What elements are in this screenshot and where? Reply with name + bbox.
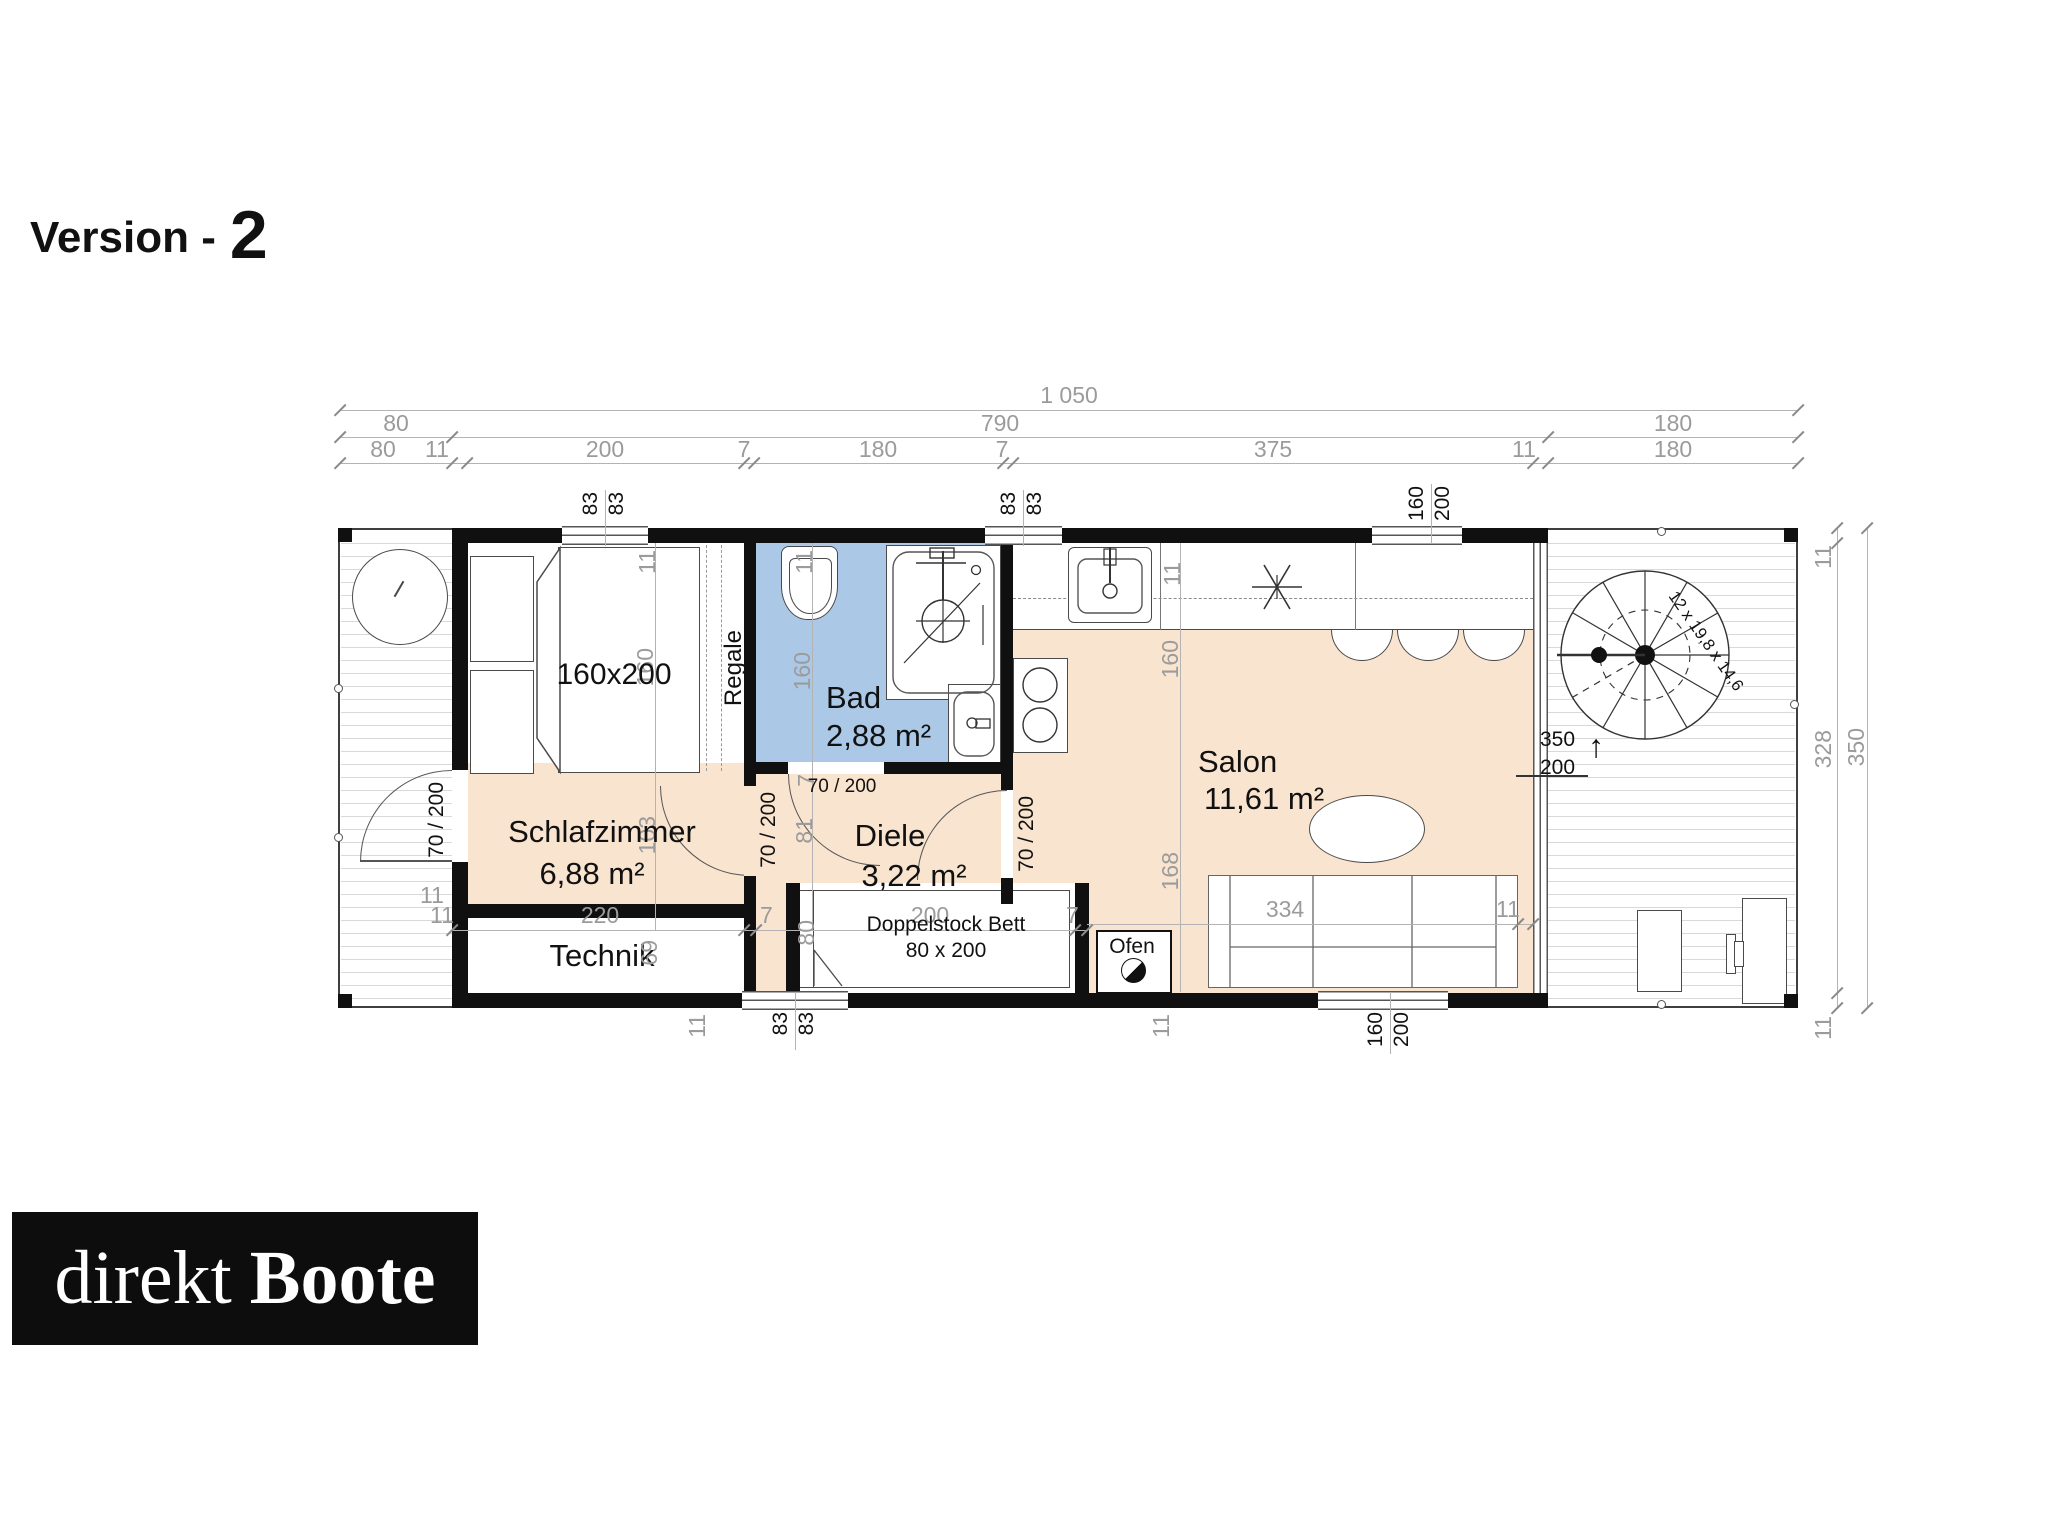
- regale-shelf-line: [706, 545, 707, 771]
- door-label-diele-salon: 70 / 200: [1016, 796, 1037, 872]
- deck-corner: [1784, 528, 1798, 542]
- bett-fold: [812, 948, 846, 990]
- dim-technik-69: 69: [638, 940, 661, 966]
- dim-line-row2: [340, 437, 1798, 438]
- dim-win-bett-83b: 83: [796, 1012, 817, 1035]
- dim-win-bed-83b: 83: [606, 492, 627, 515]
- deck-corner: [338, 528, 352, 542]
- rear-deck-chair-arm: [1734, 941, 1744, 967]
- spiral-staircase: 12 x 19,8 x 14,6: [1552, 562, 1742, 752]
- dim-line-right-inner: [1837, 528, 1838, 1008]
- dim-win-salon2-160: 160: [1365, 1012, 1386, 1047]
- door-label-deck: 70 / 200: [426, 782, 447, 858]
- window-salon-bottom: [1318, 991, 1448, 1010]
- title-number: 2: [230, 197, 268, 273]
- dim-row3-375: 375: [1254, 438, 1292, 461]
- deck-corner: [338, 994, 352, 1008]
- dim-bottom-7b: 7: [1066, 904, 1079, 927]
- ofen-label: Ofen: [1109, 936, 1155, 957]
- dim-row3-7a: 7: [738, 438, 751, 461]
- room-schlafzimmer-name: Schlafzimmer: [508, 814, 696, 850]
- slider-height: 200: [1540, 757, 1575, 778]
- bed-size-label: 160x200: [556, 658, 671, 693]
- dim-right-328: 328: [1812, 730, 1835, 768]
- room-diele-area: 3,22 m²: [861, 858, 966, 894]
- dim-bottom-11: 11: [430, 904, 454, 927]
- window-salon-top: [1372, 526, 1462, 545]
- wall-bett-east: [1075, 883, 1089, 993]
- wardrobe-upper: [470, 556, 534, 662]
- wall-salon-west-lower: [1001, 878, 1013, 904]
- dim-salon-11: 11: [1161, 562, 1184, 586]
- room-bad-name: Bad: [826, 680, 881, 716]
- brand-logo: direkt Boote: [12, 1212, 478, 1345]
- kitchen-sink-symbol: [1068, 547, 1152, 623]
- stove-burners: [1013, 658, 1068, 753]
- page-title: Version -2: [30, 196, 268, 274]
- dim-below-11a: 11: [686, 1014, 709, 1038]
- dim-row3-11b: 11: [1512, 438, 1536, 461]
- dim-win-bad-83a: 83: [998, 492, 1019, 515]
- dim-win-bed-83a: 83: [580, 492, 601, 515]
- wall-left: [452, 528, 468, 1008]
- title-text: Version -: [30, 213, 216, 262]
- dim-row2-180: 180: [1654, 412, 1692, 435]
- dim-total: 1 050: [1040, 384, 1098, 407]
- rail-node: [334, 833, 343, 842]
- dim-right-350: 350: [1845, 728, 1868, 766]
- deck-corner: [1784, 994, 1798, 1008]
- dim-sofa-11: 11: [1496, 898, 1520, 921]
- dim-line-right-outer: [1867, 528, 1868, 1008]
- dim-row3-180a: 180: [859, 438, 897, 461]
- shower-symbol: [886, 545, 1001, 700]
- room-bad-area: 2,88 m²: [826, 718, 931, 754]
- dim-row3-80: 80: [370, 438, 396, 461]
- wardrobe-lower: [470, 670, 534, 774]
- dimline-sofa: [1087, 924, 1533, 925]
- dim-line-total: [340, 410, 1798, 411]
- dim-sofa-334: 334: [1266, 898, 1304, 921]
- slider-width: 350: [1540, 729, 1575, 750]
- slider-arrow-icon: ↑: [1588, 730, 1604, 762]
- rail-node: [1657, 527, 1666, 536]
- dim-salon-168: 168: [1159, 852, 1182, 890]
- dim-win-bad-83b: 83: [1024, 492, 1045, 515]
- bett-label-2: 80 x 200: [906, 940, 987, 961]
- dim-row3-180b: 180: [1654, 438, 1692, 461]
- rail-node: [1657, 1000, 1666, 1009]
- dim-bad-160: 160: [791, 652, 814, 690]
- door-opening-schlafzimmer: [744, 786, 756, 876]
- deck-round-table: [352, 549, 448, 645]
- salon-table: [1309, 795, 1425, 863]
- dim-row2-80: 80: [383, 412, 409, 435]
- counter-divider: [1160, 543, 1161, 630]
- ofen-icon: [1121, 958, 1146, 983]
- dim-diele-81: 81: [793, 818, 816, 844]
- logo-word-1: direkt: [54, 1235, 231, 1322]
- door-leaf-deck: [360, 860, 452, 862]
- dimline-col-bedroom: [655, 543, 656, 930]
- dimline-col-bad: [812, 543, 813, 930]
- dim-win-salon-160: 160: [1406, 486, 1427, 521]
- logo-word-2: Boote: [250, 1235, 436, 1322]
- door-opening-bad: [788, 762, 884, 774]
- sofa-sections: [1208, 875, 1518, 988]
- dim-row2-790: 790: [981, 412, 1019, 435]
- dim-line-row3: [340, 463, 1798, 464]
- dim-bett-80: 80: [795, 920, 818, 946]
- dim-right-11-top: 11: [1812, 545, 1835, 569]
- room-salon-area: 11,61 m²: [1204, 781, 1324, 817]
- dim-row3-7b: 7: [996, 438, 1009, 461]
- dim-below-11b: 11: [1150, 1014, 1173, 1038]
- dim-win-salon2-200: 200: [1391, 1012, 1412, 1047]
- dim-bottom-7a: 7: [760, 904, 773, 927]
- dim-win-salon-200: 200: [1432, 486, 1453, 521]
- hob-symbol: [1251, 561, 1303, 613]
- bad-sink-symbol: [948, 684, 1001, 764]
- rail-node: [1790, 700, 1799, 709]
- dim-bad-wall-7: 7: [795, 774, 818, 787]
- room-salon-name: Salon: [1198, 744, 1277, 780]
- dim-bad-11: 11: [793, 550, 816, 574]
- rail-node: [334, 684, 343, 693]
- door-label-schlafzimmer: 70 / 200: [758, 792, 779, 868]
- door-opening-deck: [452, 770, 468, 862]
- rear-deck-chair: [1742, 898, 1787, 1004]
- dim-bedroom-11: 11: [636, 550, 659, 574]
- dim-row3-11: 11: [425, 438, 449, 461]
- rear-deck-table: [1637, 910, 1682, 992]
- dim-win-bett-83a: 83: [770, 1012, 791, 1035]
- regale-label: Regale: [722, 630, 746, 706]
- floorplan-page: Version -2 1 050 80 790 180 80 11 200 7 …: [0, 0, 2048, 1538]
- bett-label-1: Doppelstock Bett: [867, 914, 1026, 935]
- dim-right-11-bottom: 11: [1812, 1016, 1835, 1040]
- dim-bottom-220: 220: [581, 904, 619, 927]
- room-diele-name: Diele: [855, 818, 926, 854]
- dim-salon-160: 160: [1159, 640, 1182, 678]
- wall-salon-west-upper: [1001, 543, 1013, 790]
- room-schlafzimmer-area: 6,88 m²: [539, 856, 644, 892]
- counter-divider: [1355, 543, 1356, 630]
- dim-row3-200: 200: [586, 438, 624, 461]
